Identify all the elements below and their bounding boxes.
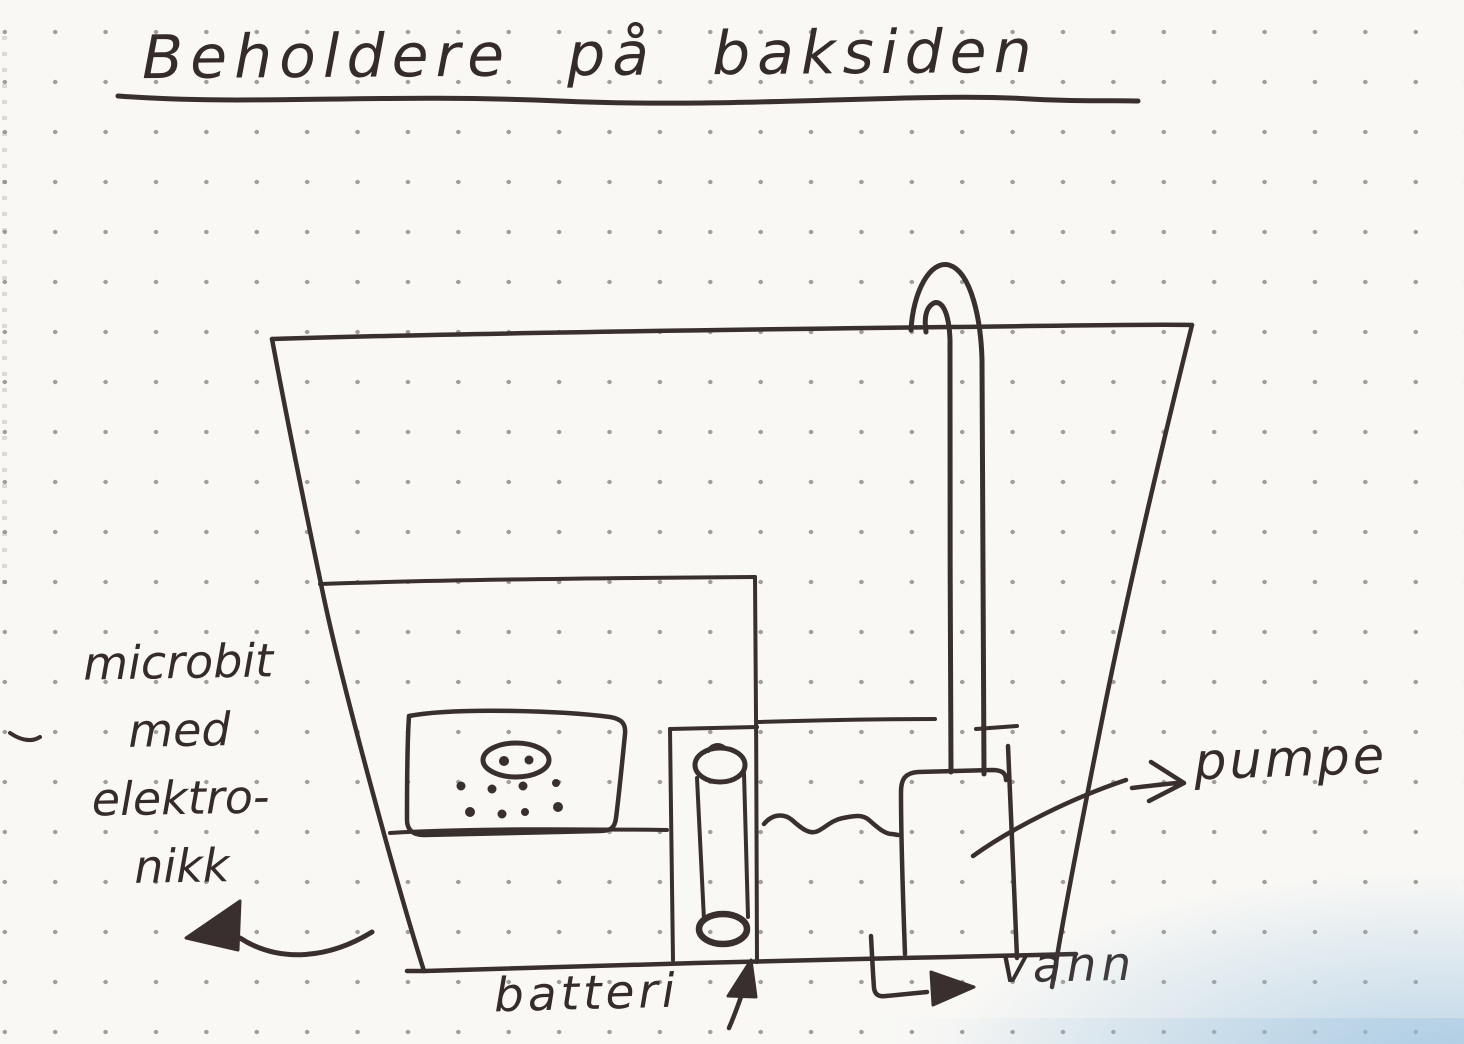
battery-bottom-ellipse <box>699 914 747 944</box>
vann-arrow <box>871 936 974 1005</box>
microbit-board-outline <box>407 711 625 835</box>
microbit-label: microbit med elektro- nikk <box>10 625 351 903</box>
battery-left-side <box>697 778 704 920</box>
outer-container <box>272 325 1192 987</box>
battery-box-top <box>670 727 757 729</box>
page-title: Beholdere på baksiden <box>142 17 1039 93</box>
batteri-arrowhead <box>728 960 756 997</box>
microbit-label-line2: med <box>11 693 348 767</box>
microbit-speaker-oval <box>483 743 549 777</box>
electronics-compartment <box>320 577 757 962</box>
vann-arrow-elbow <box>871 936 927 996</box>
microbit-dot <box>500 757 509 766</box>
inner-box-top <box>320 577 755 584</box>
pumpe-arrowhead <box>1149 762 1184 801</box>
vann-arrowhead <box>931 972 974 1005</box>
microbit-label-line1: microbit <box>10 625 347 699</box>
hose-tube <box>911 264 1017 774</box>
vann-label: vann <box>1000 937 1137 994</box>
microbit-dot <box>525 756 533 764</box>
pump-box <box>901 746 1017 958</box>
microbit-label-line4: nikk <box>13 829 350 903</box>
water-compartment-top <box>758 719 935 722</box>
batteri-arrow <box>728 960 756 1028</box>
battery-compartment <box>670 727 757 960</box>
battery-box-left <box>670 729 673 960</box>
tube-left-line <box>925 303 951 772</box>
microbit-board <box>407 711 625 835</box>
tube-right-line <box>911 264 984 774</box>
battery-top-ellipse <box>695 748 745 782</box>
microbit-pin-dots <box>457 780 563 819</box>
microbit-arrow-tail <box>240 932 372 955</box>
notebook-page: Beholdere på baksiden microbit med elekt… <box>0 0 1464 1044</box>
container-top-edge <box>272 325 1192 339</box>
battery-right-side <box>744 773 748 917</box>
container-right-wall <box>1052 325 1192 987</box>
water-wavy-line <box>764 815 898 835</box>
pumpe-label: pumpe <box>1193 727 1388 793</box>
microbit-arrowhead <box>186 901 240 950</box>
title-underline <box>118 96 1138 103</box>
pump-outline <box>901 770 1006 954</box>
pump-right-edge <box>1008 746 1017 958</box>
inner-box-right <box>755 577 757 962</box>
batteri-label: batteri <box>493 964 679 1024</box>
pumpe-arrow-tail <box>973 780 1126 856</box>
microbit-label-line3: elektro- <box>12 761 349 835</box>
microbit-arrow <box>186 901 372 955</box>
